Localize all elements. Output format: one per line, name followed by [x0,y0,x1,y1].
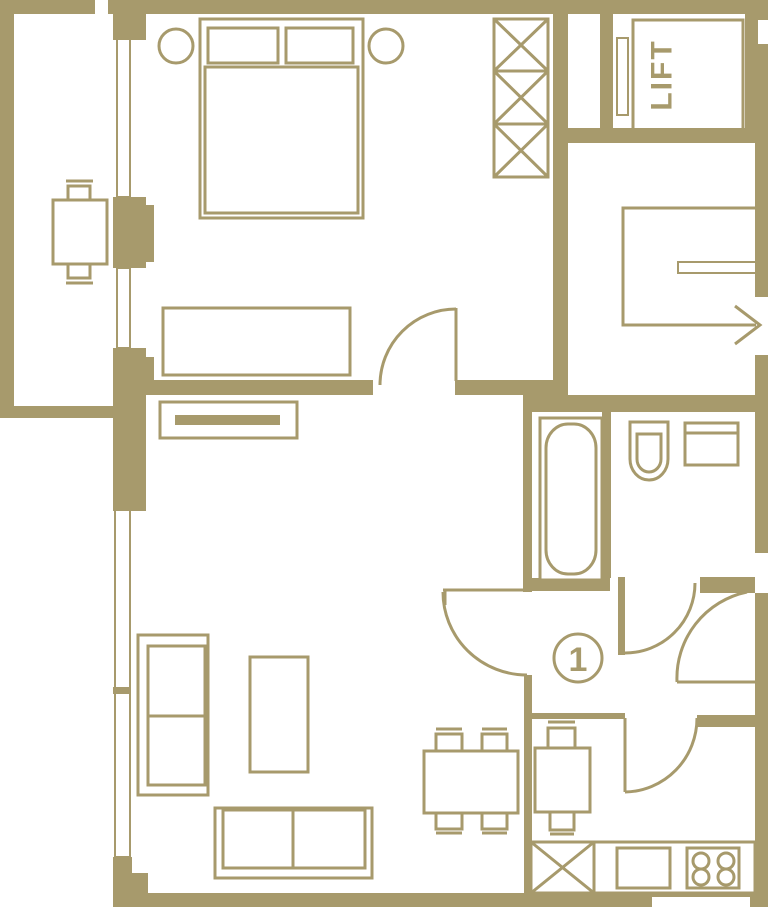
kitchen-door-icon [625,718,697,792]
living-hall-door-icon [443,590,530,675]
lift: LIFT [617,20,743,130]
floor-plan: LIFT [0,0,768,907]
bedside-table-left [159,29,193,63]
left-wall-pier-top [113,0,146,40]
stair-handrail [678,262,768,273]
living-room-furniture [138,402,518,878]
hall-entry-divider-wall [618,577,625,655]
lift-shaft-right-wall [745,13,755,130]
living-room-window [115,510,130,857]
bedroom-door-icon [380,308,456,385]
sofa-left [138,635,208,795]
lift-door-panel [617,38,628,115]
dining-set [424,729,518,833]
bathroom-fixtures [540,418,738,580]
bedroom-bottom-wall-right [455,380,568,395]
kitchen-table [535,748,590,812]
dining-table [424,751,518,813]
sink-icon [617,848,670,888]
bedroom-bench [163,308,350,375]
unit-number-label: 1 [569,641,588,679]
lift-shaft-left-wall [600,13,613,128]
right-wall-gap-entry [755,553,768,593]
kitchen-furniture [531,722,755,893]
left-wall-pier-lower [113,348,146,511]
tv-icon [175,415,280,425]
bedside-table-right [369,29,403,63]
floor-plan-drawing: LIFT [0,0,768,907]
balcony-chair-bottom [68,264,90,278]
hob-icon [687,848,739,888]
dining-chair [482,813,507,829]
appliance-unit-icon [531,842,594,893]
kitchen-window-gap [652,897,750,907]
bedroom-window-1 [117,38,130,197]
balcony-furniture [53,181,107,283]
bedroom-furniture [159,19,548,375]
entry-top-wall-stub [700,577,755,593]
left-wall-pier-mid-bump [146,205,154,262]
coffee-table [250,657,308,772]
bedroom-lobby-wall [553,13,568,395]
bathtub-icon [540,418,602,580]
left-bottom-corner-wall [113,857,132,907]
mattress [205,67,358,213]
balcony-door-gap [95,0,108,14]
bathroom-left-wall [523,395,532,592]
wardrobe [494,19,548,177]
kitchen-top-wall-stub [697,715,755,727]
kitchen-table-set [535,722,590,834]
left-wall-pier-mid [113,197,146,268]
kitchen-chair [548,728,575,748]
pillow-left [208,28,278,63]
staircase [623,208,768,344]
kitchen-top-wall [530,713,625,719]
balcony-left-wall [0,0,14,418]
lift-label: LIFT [646,39,679,110]
dining-chair [436,813,462,829]
kitchen-counter [531,842,755,893]
bedroom-window-2 [117,268,130,348]
balcony-chair-top [68,186,90,200]
balcony-table [53,200,107,264]
dining-chair [436,734,462,751]
sofa-bottom [215,808,372,878]
entrance-door-icon [677,592,755,682]
right-wall-gap-top [758,20,768,44]
balcony-bottom-wall [0,406,118,418]
bedroom-bottom-wall-left [145,380,373,395]
basin-icon [685,423,738,465]
toilet-icon [630,422,668,480]
pillow-right [286,28,353,63]
dining-chair [482,734,507,751]
bathroom-top-wall [525,395,768,412]
unit-number-badge: 1 [554,634,602,682]
kitchen-chair [550,812,574,830]
